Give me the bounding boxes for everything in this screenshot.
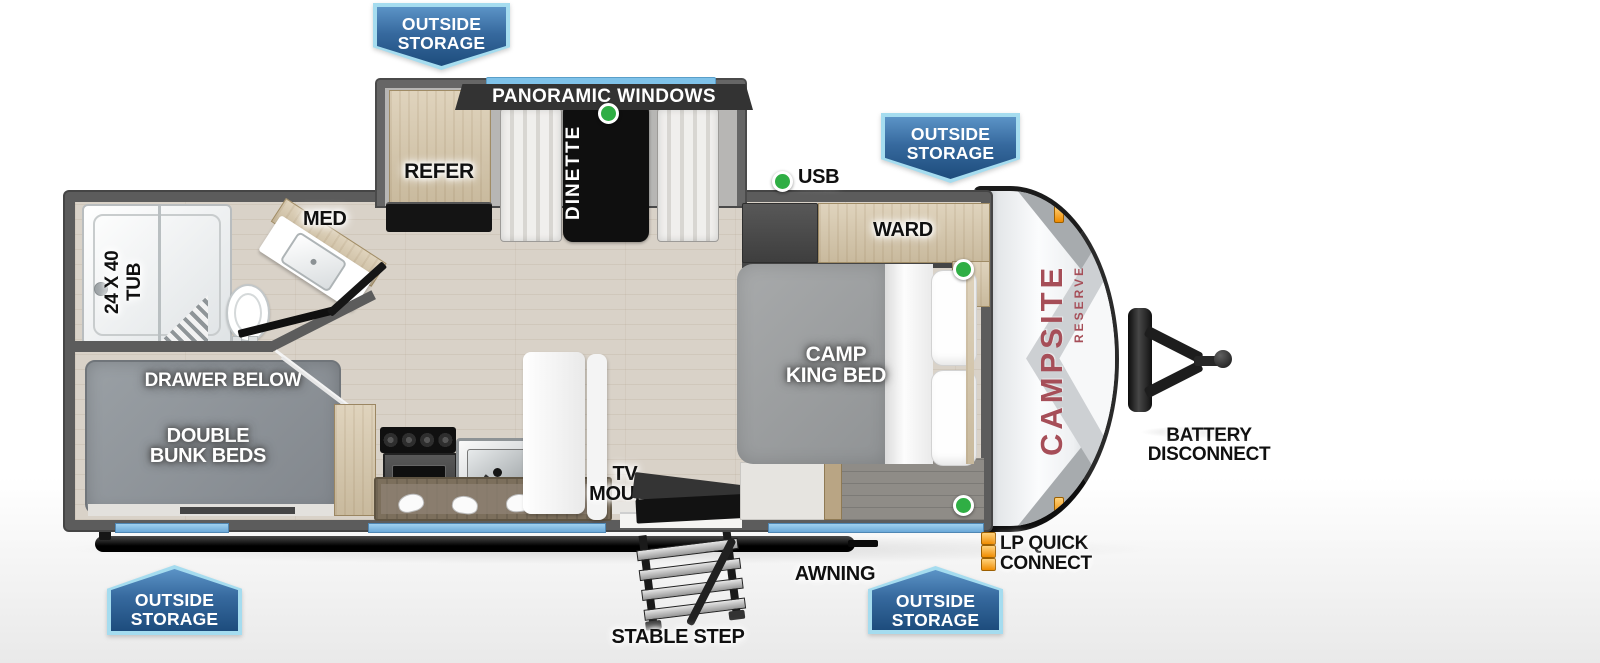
battery-line1: BATTERY xyxy=(1128,426,1290,445)
lp-connector xyxy=(981,532,996,545)
clearance-light-bottom xyxy=(1054,497,1064,515)
bathroom-wall xyxy=(65,341,273,352)
tub-label-size: 24 X 40 xyxy=(102,234,124,330)
banner-text: OUTSIDE STORAGE xyxy=(373,15,510,54)
battery-disconnect-label: BATTERY DISCONNECT xyxy=(1128,426,1290,465)
lp-quick-connect-label: LP QUICK CONNECT xyxy=(1000,534,1100,574)
banner-text: OUTSIDE STORAGE xyxy=(881,125,1020,164)
bed-foot-rail xyxy=(824,461,842,520)
brand-series-text: RESERVE xyxy=(1072,239,1089,369)
refer-counter xyxy=(386,202,492,232)
banner-line1: OUTSIDE xyxy=(881,125,1020,144)
camp-king-bed-label: CAMP KING BED xyxy=(737,344,935,387)
lp-label-line2: CONNECT xyxy=(1000,554,1100,574)
bed-label-line1: CAMP xyxy=(737,344,935,365)
banner-line2: STORAGE xyxy=(868,611,1003,630)
hitch-ball xyxy=(1214,350,1232,368)
kitchen-sink-drain xyxy=(493,468,502,477)
refer-label: REFER xyxy=(389,160,489,184)
banner-line1: OUTSIDE xyxy=(373,15,510,34)
outside-storage-banner-bottom-left: OUTSIDE STORAGE xyxy=(107,565,242,635)
banner-line2: STORAGE xyxy=(107,610,242,629)
window-strip xyxy=(768,523,984,533)
bed-foot-bench xyxy=(740,462,828,520)
bed-side-ledge xyxy=(966,264,974,464)
window-strip xyxy=(115,523,229,533)
front-cap: CAMPSITE RESERVE xyxy=(973,186,1119,532)
poi-dot-usb xyxy=(772,171,793,192)
step-tread xyxy=(641,578,744,601)
double-bunk-label: DOUBLE BUNK BEDS xyxy=(128,426,288,467)
outside-storage-banner-top-right: OUTSIDE STORAGE xyxy=(881,113,1020,183)
shower-glass xyxy=(158,206,161,342)
step-foot xyxy=(728,610,745,621)
banner-line1: OUTSIDE xyxy=(868,592,1003,611)
drawer-below-label: DRAWER BELOW xyxy=(140,370,306,392)
double-bunk-line1: DOUBLE xyxy=(128,426,288,446)
outside-storage-banner-top-left: OUTSIDE STORAGE xyxy=(373,3,510,70)
window-strip xyxy=(368,523,606,533)
stable-step-label: STABLE STEP xyxy=(608,626,748,649)
awning-tube xyxy=(95,536,855,552)
banner-text: OUTSIDE STORAGE xyxy=(107,591,242,630)
bed-label-line2: KING BED xyxy=(737,365,935,386)
bath-sink-drain xyxy=(309,258,317,266)
med-label: MED xyxy=(303,208,347,231)
dinette-bench-left xyxy=(500,108,562,242)
poi-dot-bed-head xyxy=(953,259,974,280)
banner-line1: OUTSIDE xyxy=(107,591,242,610)
drain-stub xyxy=(99,530,111,540)
tub-label: 24 X 40 TUB xyxy=(102,234,148,330)
usb-label: USB xyxy=(798,166,839,189)
banner-line2: STORAGE xyxy=(373,34,510,53)
double-bunk-line2: BUNK BEDS xyxy=(128,446,288,466)
floorplan: CAMPSITE RESERVE REFER DINETTE PANORAMIC… xyxy=(0,0,1600,663)
tub-label-word: TUB xyxy=(124,234,146,330)
brand-model-text: CAMPSITE xyxy=(1034,229,1074,491)
bunk-base-board-dark xyxy=(180,507,295,514)
stove-cooktop xyxy=(380,427,456,453)
clearance-light-top xyxy=(1054,205,1064,223)
battery-line2: DISCONNECT xyxy=(1128,445,1290,464)
awning-bracket xyxy=(848,540,878,547)
lp-connector xyxy=(981,545,996,558)
overhead-cabinet xyxy=(742,203,818,263)
poi-dot-bed-foot xyxy=(953,495,974,516)
dinette-bench-right xyxy=(657,108,719,242)
ward-label: WARD xyxy=(818,219,988,242)
awning-label: AWNING xyxy=(790,563,880,586)
pantry-partition xyxy=(523,352,585,514)
hitch-arm-lower xyxy=(1144,360,1204,398)
poi-dot-dinette xyxy=(598,103,619,124)
outside-storage-banner-bottom-right: OUTSIDE STORAGE xyxy=(868,566,1003,634)
bunk-corner-cabinet xyxy=(334,404,376,516)
banner-text: OUTSIDE STORAGE xyxy=(868,592,1003,631)
banner-line2: STORAGE xyxy=(881,144,1020,163)
lp-label-line1: LP QUICK xyxy=(1000,534,1100,554)
